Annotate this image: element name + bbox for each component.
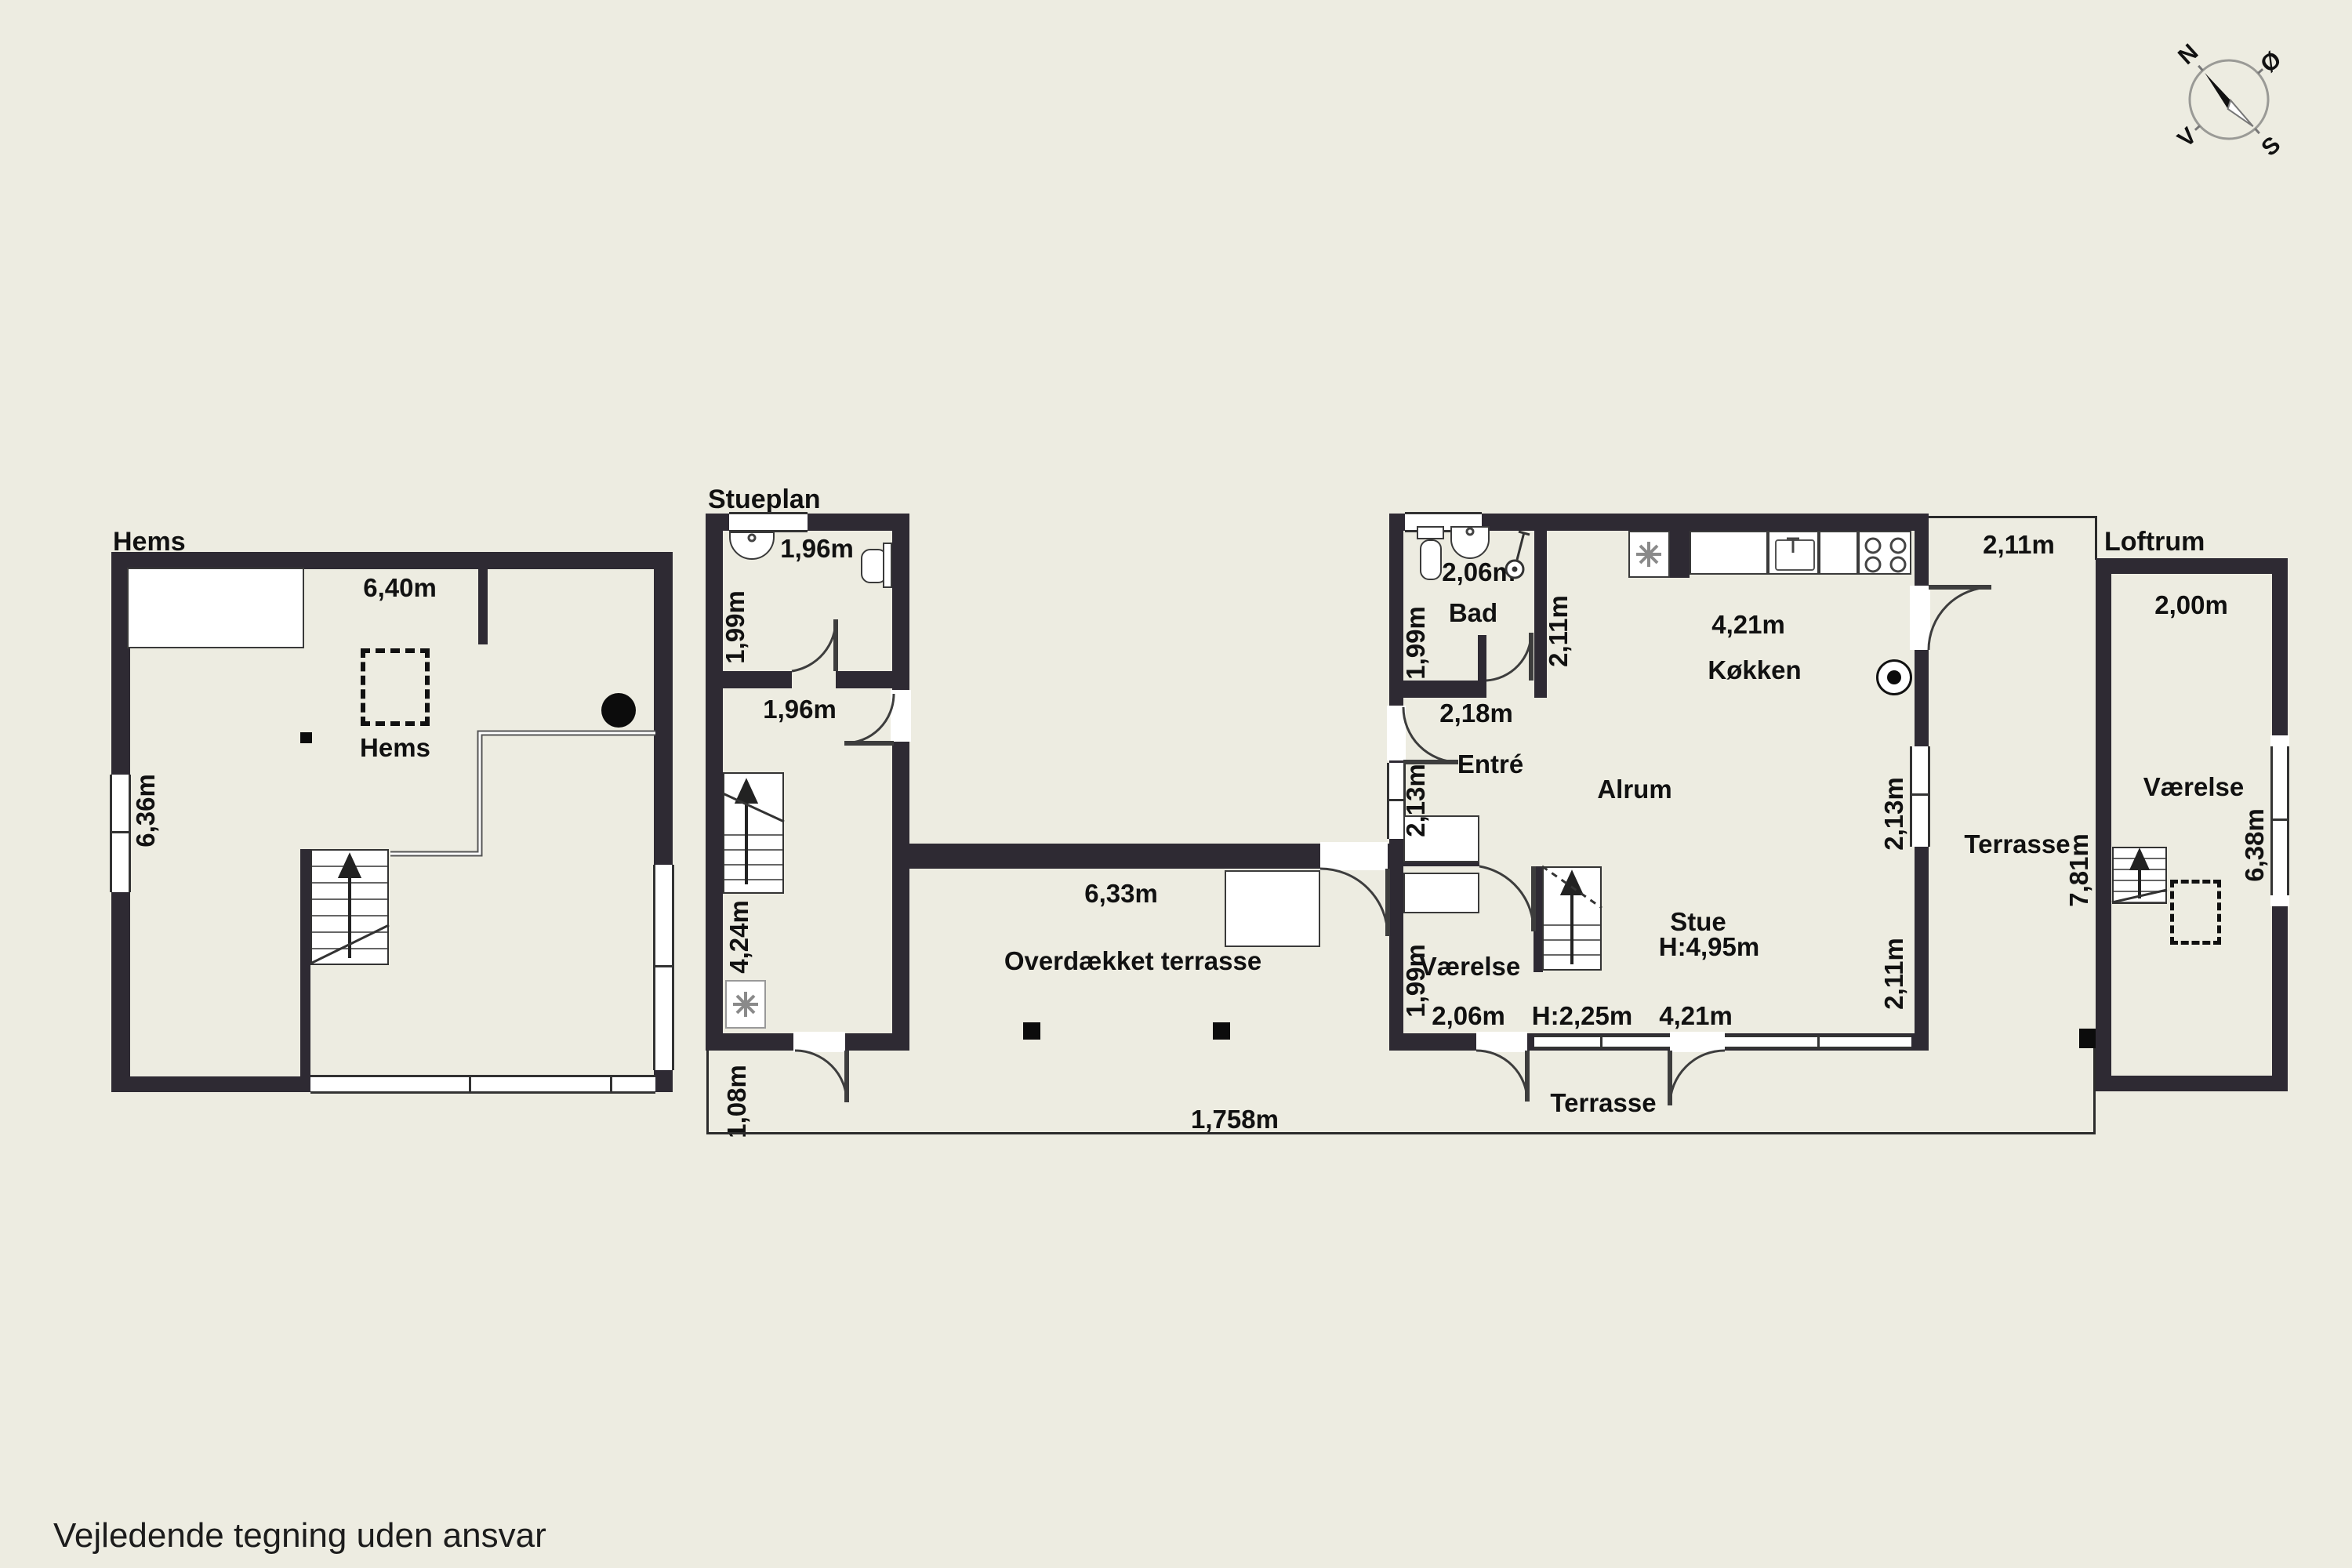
stair-diagonals xyxy=(310,793,2167,964)
compass-icon: N Ø S V xyxy=(2132,1,2328,199)
disclaimer-text: Vejledende tegning uden ansvar xyxy=(53,1516,546,1555)
door-arcs xyxy=(792,587,1991,1105)
fridge-snowflake-icon xyxy=(1636,542,1661,567)
compass-s: S xyxy=(2256,132,2285,162)
compass-n: N xyxy=(2173,39,2203,70)
plan-linework: N Ø S V xyxy=(0,0,2352,1568)
washer-icon xyxy=(733,992,758,1017)
floor-plan-canvas: Hems 6,40m Hems 6,36m Stueplan 1,96m 1,9… xyxy=(0,0,2352,1568)
stair-arrows xyxy=(340,782,2147,964)
stove-burners-icon xyxy=(1866,539,1905,572)
compass-e: Ø xyxy=(2256,46,2286,78)
hems-railing xyxy=(390,733,655,854)
shower-icon xyxy=(1506,532,1530,578)
